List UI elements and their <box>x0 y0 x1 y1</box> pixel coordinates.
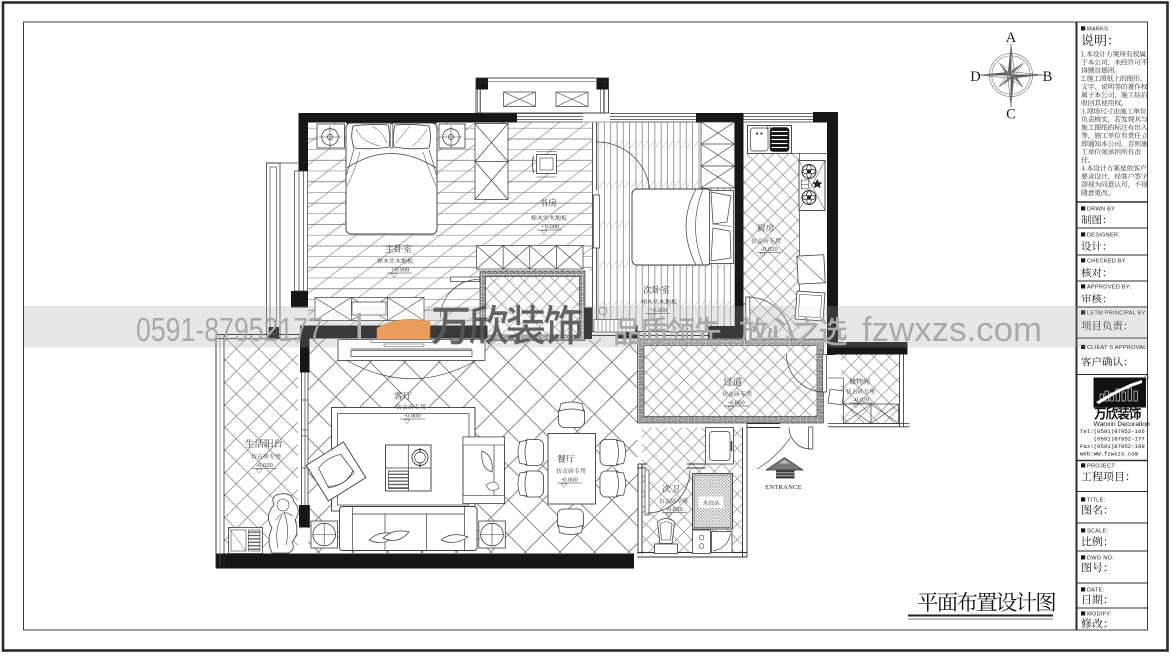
svg-text:DRWN BY: DRWN BY <box>1087 207 1115 213</box>
svg-text:DWG NO:: DWG NO: <box>1087 556 1114 562</box>
svg-text:fzwxzs.com: fzwxzs.com <box>862 311 1042 349</box>
svg-text:CHECKED BY: CHECKED BY <box>1087 259 1126 265</box>
svg-text:-0.020: -0.020 <box>853 397 869 404</box>
svg-text:0591-87952177: 0591-87952177 <box>136 311 323 348</box>
svg-text:-0.000: -0.000 <box>561 477 578 484</box>
svg-text:Wanxin Decoration: Wanxin Decoration <box>1094 421 1151 428</box>
svg-text:B: B <box>1043 69 1053 85</box>
svg-text:A: A <box>1006 30 1017 46</box>
svg-text:-0.000: -0.000 <box>728 400 745 407</box>
svg-text:APPROVED BY:: APPROVED BY: <box>1087 285 1132 291</box>
svg-text:TITLE:: TITLE: <box>1087 498 1105 504</box>
svg-text:Tel:(0591)87952-166: Tel:(0591)87952-166 <box>1080 428 1145 435</box>
svg-text:+0.000: +0.000 <box>391 267 409 274</box>
svg-text:SCALE:: SCALE: <box>1087 529 1109 535</box>
svg-text:-0.000: -0.000 <box>404 413 421 420</box>
svg-text:ENTRANCE: ENTRANCE <box>765 484 802 491</box>
svg-text:MODIFY:: MODIFY: <box>1087 612 1112 618</box>
svg-text:PROJECT:: PROJECT: <box>1087 464 1116 470</box>
svg-text:DATE:: DATE: <box>1087 588 1105 594</box>
svg-text:-0.020: -0.020 <box>666 506 683 513</box>
svg-text:D: D <box>970 69 980 85</box>
svg-text:MARKS:: MARKS: <box>1087 27 1110 33</box>
svg-text:Web:WW.fzwxzs.com: Web:WW.fzwxzs.com <box>1080 451 1139 458</box>
svg-text:C: C <box>1006 107 1016 123</box>
svg-text:(0591)87952-177: (0591)87952-177 <box>1080 436 1145 443</box>
svg-text:-0.020: -0.020 <box>256 462 273 469</box>
svg-text:DESIGNER:: DESIGNER: <box>1087 233 1120 239</box>
svg-text:-0.020: -0.020 <box>761 246 778 253</box>
svg-text:+0.000: +0.000 <box>541 224 559 231</box>
svg-text:Fax:(0591)87952-199: Fax:(0591)87952-199 <box>1080 443 1145 450</box>
